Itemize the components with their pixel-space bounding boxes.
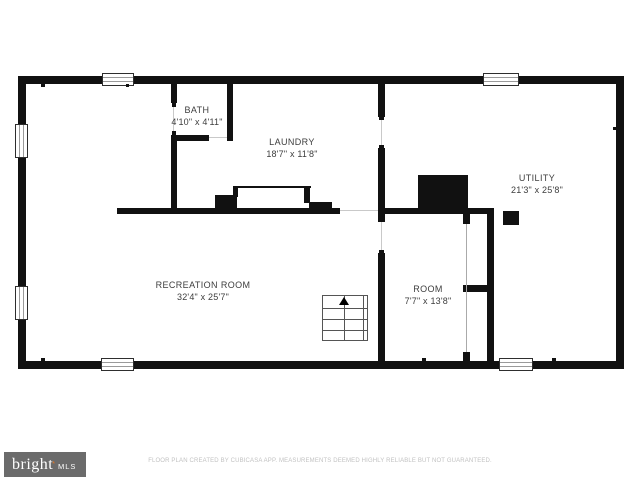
window-top-right [483, 73, 519, 86]
counter-right-cap [304, 186, 310, 203]
room-dims: 32'4" x 25'7" [156, 291, 251, 303]
opening-room-door [381, 222, 382, 253]
wall-bath-left-upper [171, 84, 177, 103]
room-dims: 18'7" x 11'8" [266, 148, 317, 160]
room-dims: 7'7" x 13'8" [405, 295, 452, 307]
wall-room-left-lower [378, 253, 385, 362]
room-label-room: ROOM 7'7" x 13'8" [405, 283, 452, 307]
wall-room-left-upper [378, 214, 385, 222]
stair-tread [323, 330, 367, 331]
door-tick [172, 131, 176, 135]
wall-laundry-west [171, 141, 177, 214]
opening-main-wall [340, 210, 378, 211]
opening-room-east [466, 224, 467, 352]
room-name: UTILITY [511, 172, 563, 184]
wall-room-stub [463, 285, 494, 292]
wall-bath-right [227, 84, 233, 141]
floor-plan-page: BATH 4'10" x 4'11" LAUNDRY 18'7" x 11'8"… [0, 0, 640, 480]
room-name: ROOM [405, 283, 452, 295]
door-tick [379, 117, 384, 120]
wall-tick [126, 84, 129, 87]
window-bottom-left [101, 358, 134, 371]
disclaimer-text: FLOOR PLAN CREATED BY CUBICASA APP. MEAS… [0, 458, 640, 464]
wall-outer-right [616, 76, 624, 369]
wall-divider-lower [378, 148, 385, 208]
door-tick [379, 250, 384, 253]
room-opening-cap-top [463, 211, 470, 224]
stair-tread [323, 308, 367, 309]
wall-divider-upper [378, 84, 385, 117]
wall-tick [422, 358, 426, 361]
stair-divider [363, 296, 364, 340]
room-label-utility: UTILITY 21'3" x 25'8" [511, 172, 563, 196]
stair-tread [323, 319, 367, 320]
counter-top-edge [234, 186, 311, 188]
support-post [503, 211, 519, 225]
room-label-recreation: RECREATION ROOM 32'4" x 25'7" [156, 279, 251, 303]
room-dims: 21'3" x 25'8" [511, 184, 563, 196]
wall-main-west [117, 208, 340, 214]
wall-tick [41, 84, 45, 87]
brightmls-logo: bright*MLS [4, 452, 86, 477]
wall-outer-left [18, 76, 26, 369]
room-name: BATH [171, 104, 222, 116]
window-bottom-right [499, 358, 533, 371]
door-tick [205, 136, 209, 140]
staircase-up [322, 295, 368, 341]
room-opening-cap-bottom [463, 352, 470, 362]
window-top-left [102, 73, 134, 86]
wall-tick [613, 127, 618, 130]
room-label-bath: BATH 4'10" x 4'11" [171, 104, 222, 128]
opening-bath-laundry [209, 137, 227, 138]
wall-tick [41, 358, 45, 361]
window-left-lower [15, 286, 28, 320]
counter-left-cap [233, 186, 238, 197]
room-name: RECREATION ROOM [156, 279, 251, 291]
laundry-appliance-right [309, 202, 332, 208]
room-name: LAUNDRY [266, 136, 317, 148]
furnace-block [418, 175, 468, 213]
door-tick [379, 145, 384, 148]
stairs-up-arrow-icon [339, 297, 349, 305]
room-dims: 4'10" x 4'11" [171, 116, 222, 128]
opening-divider-door [381, 117, 382, 148]
room-label-laundry: LAUNDRY 18'7" x 11'8" [266, 136, 317, 160]
window-left-upper [15, 124, 28, 158]
wall-tick [552, 358, 556, 361]
